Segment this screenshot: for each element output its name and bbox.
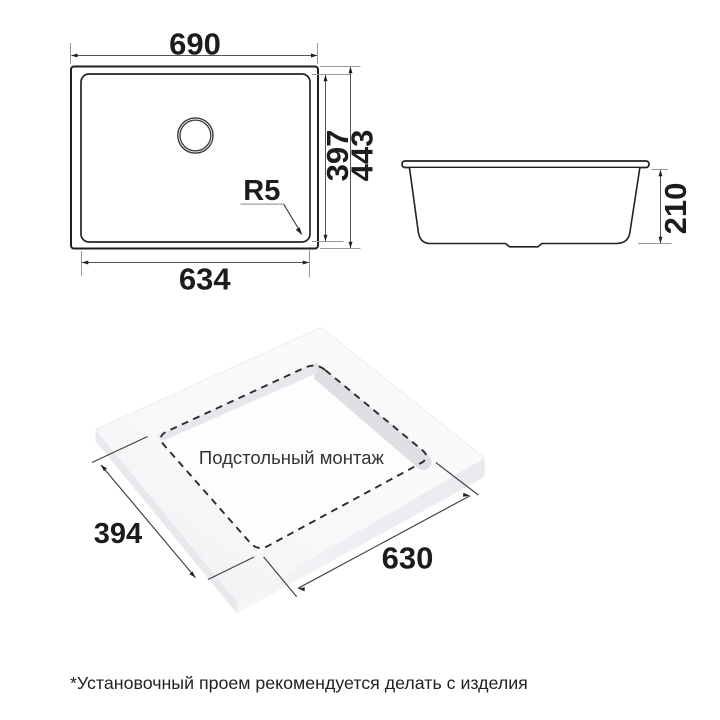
svg-text:690: 690 <box>169 27 221 62</box>
svg-text:634: 634 <box>179 262 231 297</box>
svg-text:630: 630 <box>382 541 434 576</box>
svg-text:443: 443 <box>344 130 379 182</box>
svg-text:210: 210 <box>658 183 693 235</box>
svg-text:R5: R5 <box>243 175 280 207</box>
svg-text:Подстольный монтаж: Подстольный монтаж <box>199 447 385 468</box>
svg-text:394: 394 <box>94 518 142 550</box>
svg-text:*Установочный проем рекомендуе: *Установочный проем рекомендуется делать… <box>70 673 528 693</box>
